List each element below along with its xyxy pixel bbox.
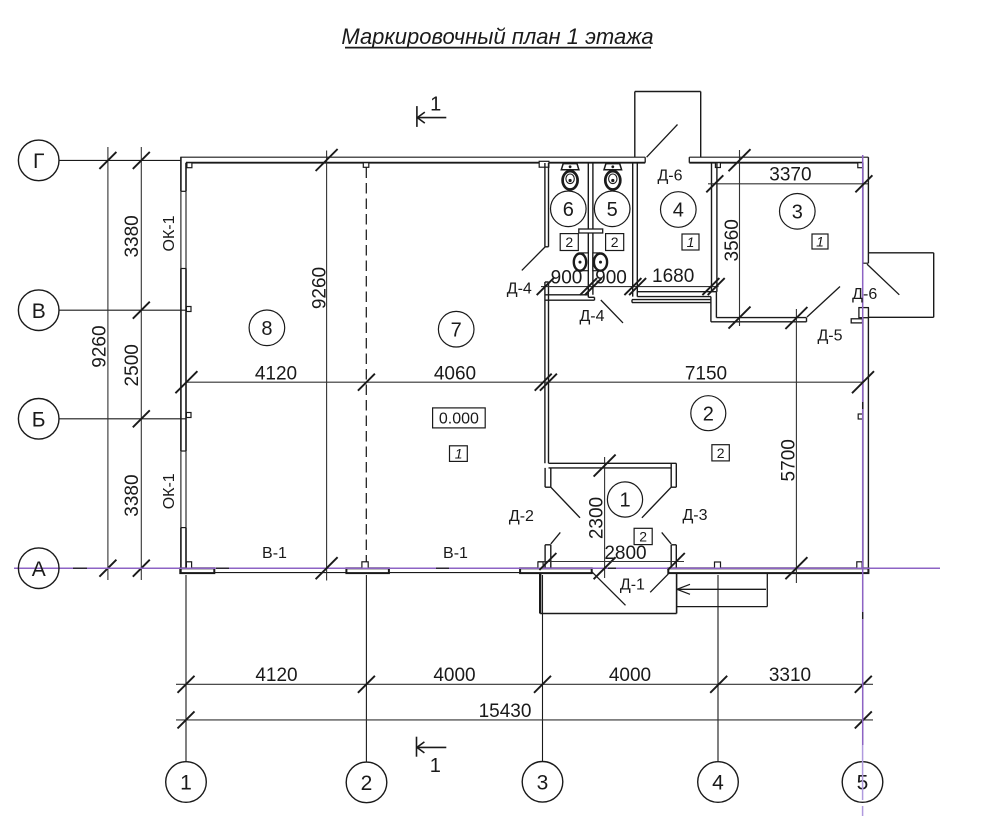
svg-text:3: 3: [792, 202, 803, 224]
svg-text:Д-6: Д-6: [852, 286, 877, 303]
svg-text:2500: 2500: [122, 344, 143, 386]
svg-text:4120: 4120: [255, 665, 297, 686]
svg-text:Д-5: Д-5: [817, 328, 842, 345]
svg-text:Д-6: Д-6: [657, 168, 682, 185]
svg-text:Д-3: Д-3: [682, 507, 707, 524]
svg-text:7150: 7150: [685, 363, 727, 384]
svg-text:4: 4: [673, 200, 684, 222]
svg-text:3560: 3560: [722, 219, 743, 261]
svg-text:4000: 4000: [433, 665, 475, 686]
svg-text:9260: 9260: [89, 325, 110, 367]
svg-text:Д-1: Д-1: [620, 577, 645, 594]
svg-text:ОК-1: ОК-1: [161, 473, 178, 509]
svg-text:Д-2: Д-2: [509, 508, 534, 525]
svg-text:1: 1: [430, 94, 441, 116]
svg-text:2300: 2300: [587, 497, 608, 539]
svg-text:Д-4: Д-4: [579, 308, 604, 325]
svg-text:Маркировочный план 1 этажа: Маркировочный план 1 этажа: [341, 24, 653, 49]
svg-text:4060: 4060: [434, 363, 476, 384]
svg-text:2: 2: [361, 772, 373, 795]
svg-text:4: 4: [712, 772, 724, 795]
svg-text:1: 1: [816, 234, 824, 250]
svg-text:5: 5: [607, 199, 618, 221]
svg-text:1: 1: [687, 234, 695, 250]
svg-text:ОК-1: ОК-1: [161, 215, 178, 251]
svg-text:Б: Б: [32, 408, 46, 431]
svg-text:2: 2: [717, 445, 725, 461]
svg-text:15430: 15430: [479, 701, 532, 722]
svg-text:2: 2: [703, 403, 714, 425]
svg-text:В-1: В-1: [443, 545, 468, 562]
svg-text:4120: 4120: [255, 363, 297, 384]
svg-text:1: 1: [455, 446, 463, 462]
svg-text:9260: 9260: [309, 267, 330, 309]
svg-text:4000: 4000: [609, 665, 651, 686]
svg-text:900: 900: [595, 268, 627, 289]
svg-text:2: 2: [639, 529, 647, 545]
svg-text:1: 1: [430, 755, 441, 777]
svg-text:3370: 3370: [769, 165, 811, 186]
svg-text:2: 2: [611, 234, 619, 250]
svg-text:3380: 3380: [122, 215, 143, 257]
svg-text:6: 6: [563, 199, 574, 221]
svg-text:0.000: 0.000: [439, 410, 479, 427]
svg-text:В-1: В-1: [262, 545, 287, 562]
svg-text:3380: 3380: [122, 474, 143, 516]
svg-text:2800: 2800: [604, 543, 646, 564]
svg-text:3: 3: [537, 771, 549, 794]
svg-text:2: 2: [565, 234, 573, 250]
svg-text:3310: 3310: [769, 665, 811, 686]
svg-text:7: 7: [451, 319, 462, 341]
svg-text:1: 1: [619, 490, 630, 512]
svg-text:В: В: [32, 300, 46, 323]
svg-text:Д-4: Д-4: [507, 280, 532, 297]
svg-text:8: 8: [261, 318, 272, 340]
svg-text:А: А: [32, 558, 46, 581]
svg-text:1680: 1680: [652, 266, 694, 287]
svg-text:Г: Г: [33, 150, 44, 173]
svg-text:5700: 5700: [778, 439, 799, 481]
svg-text:900: 900: [551, 268, 583, 289]
svg-text:1: 1: [180, 772, 192, 795]
